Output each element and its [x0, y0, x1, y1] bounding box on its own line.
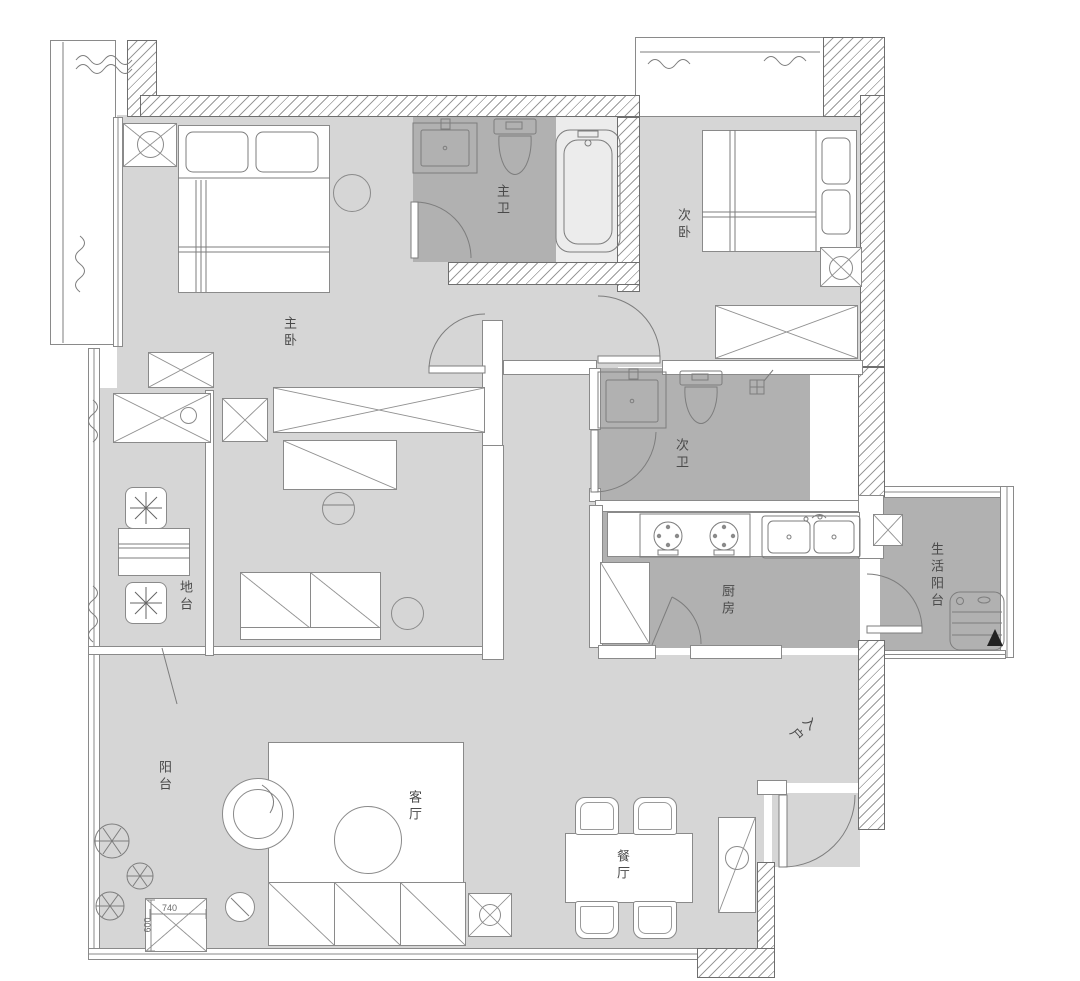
wall-bathroom2-kitchen	[595, 500, 860, 512]
dimension-740: 740	[162, 903, 177, 913]
wall-masterbed-hall	[482, 320, 503, 450]
bed-master	[178, 125, 330, 293]
side-table	[391, 597, 424, 630]
floor-lamp	[225, 892, 255, 922]
label-dining-room: 餐厅	[613, 849, 632, 883]
floor-bathtub-zone	[556, 115, 618, 265]
wardrobe-second-bedroom	[715, 305, 858, 359]
dining-chair-bottom-right	[633, 901, 677, 939]
rug-circle-icon	[334, 806, 402, 874]
wall-bedroom2-south-left	[503, 360, 597, 375]
floor-hallway	[500, 305, 600, 662]
wall-hall-left	[482, 445, 504, 660]
window-service-balcony-bottom	[878, 650, 1006, 659]
tv-cabinet-3	[400, 882, 466, 946]
label-second-bathroom: 次卫	[672, 438, 691, 472]
stool-master	[333, 174, 371, 212]
label-second-bedroom: 次卧	[674, 208, 693, 242]
bed-second	[702, 130, 857, 252]
cabinet-master-south	[148, 352, 214, 388]
floor-master-bathroom	[413, 115, 558, 265]
wall-kitchen-bottom-stub	[598, 645, 656, 659]
label-platform: 地台	[176, 580, 195, 614]
column-living-circle-icon	[479, 904, 501, 926]
sofa-seat-left	[240, 572, 311, 629]
wall-bedroom2-south-right	[662, 360, 863, 375]
ceiling-light-box-2	[125, 582, 167, 624]
kitchen-tall-cabinet	[600, 562, 650, 644]
dining-chair-bottom-left	[575, 901, 619, 939]
wall-right-entry	[858, 640, 885, 830]
wardrobe-long	[273, 387, 485, 433]
column-service-balcony	[873, 514, 903, 546]
shoe-cabinet-circle-icon	[725, 846, 749, 870]
wall-below-master-bathroom	[448, 262, 640, 285]
floor-entry-vestibule	[772, 793, 860, 867]
floor-second-bathroom	[595, 368, 810, 500]
kitchen-counter	[607, 512, 860, 557]
bay-window-top-right	[635, 37, 825, 117]
dimension-600: 600	[143, 917, 153, 932]
dining-chair-top-right	[633, 797, 677, 835]
wall-entry-top	[757, 780, 787, 795]
sofa-seat-right	[310, 572, 381, 629]
tv-cabinet-1	[268, 882, 335, 946]
window-master-bedroom	[113, 117, 123, 347]
nightstand-lamp-icon	[137, 131, 164, 158]
floor-plan: 主卧 主卫 次卧 次卫 厨房 生活阳台 地台 阳台 客厅 餐厅 入户 740 6…	[0, 0, 1080, 981]
wall-kitchen-bottom-band	[690, 645, 782, 659]
ceiling-light-box-1	[125, 487, 167, 529]
tv-cabinet-2	[334, 882, 401, 946]
platform-step-edge	[88, 646, 485, 655]
lounge-chair-inner	[233, 789, 283, 839]
label-kitchen: 厨房	[718, 584, 737, 618]
label-living-room: 客厅	[405, 790, 424, 824]
window-service-balcony-top	[878, 486, 1008, 498]
wardrobe-left-knob-icon	[180, 407, 197, 424]
dining-chair-top-left	[575, 797, 619, 835]
window-service-balcony-right	[1000, 486, 1014, 658]
desk-chair	[322, 492, 355, 525]
bay-window-left	[50, 40, 116, 345]
wall-top-main	[140, 95, 640, 117]
wall-right-upper	[860, 95, 885, 367]
column-second-bedroom-circle-icon	[829, 256, 853, 280]
label-master-bedroom: 主卧	[280, 316, 299, 350]
wall-bathroom2-left-upper	[589, 368, 601, 430]
sofa-back	[240, 627, 381, 640]
wall-bottom-right-block	[697, 948, 775, 978]
cabinet-small	[222, 398, 268, 442]
label-service-balcony: 生活阳台	[927, 542, 946, 610]
label-master-bathroom: 主卫	[493, 184, 512, 218]
wall-right-bathroom2	[858, 367, 885, 497]
label-balcony: 阳台	[155, 760, 174, 794]
desk	[283, 440, 397, 490]
platform-media-cabinet	[118, 528, 190, 576]
